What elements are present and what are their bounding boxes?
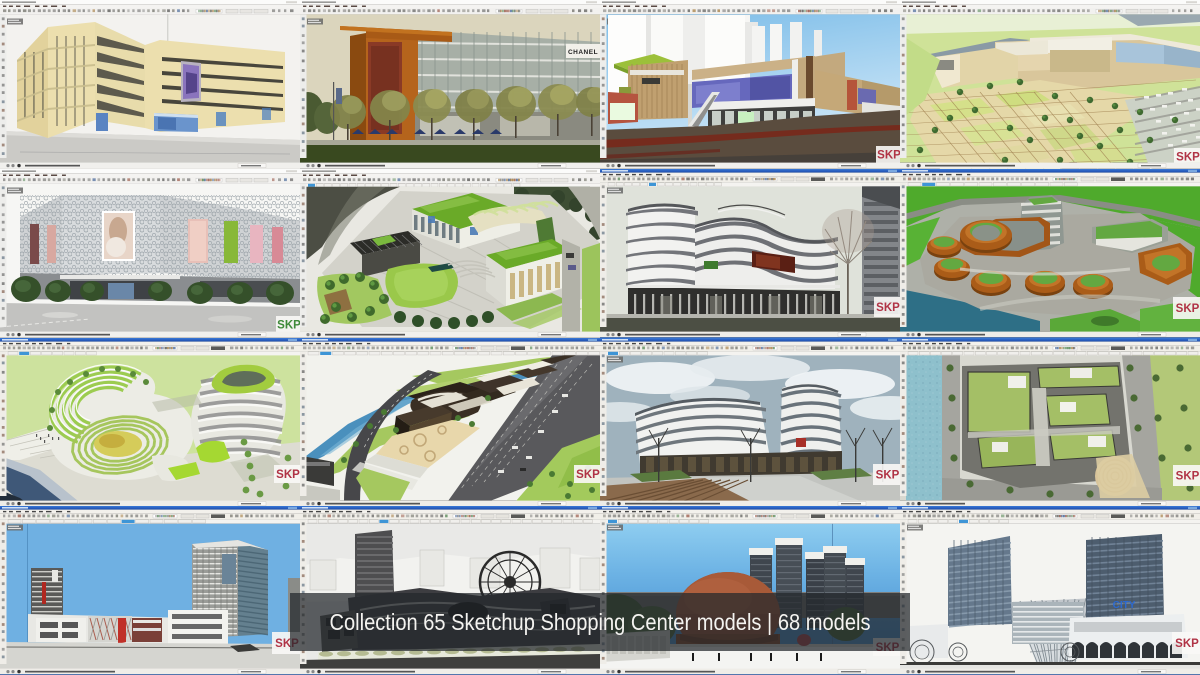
svg-text:SKP: SKP [876,469,900,481]
svg-text:CHANEL: CHANEL [568,49,598,56]
svg-text:CITY: CITY [1113,600,1136,611]
svg-text:SKP: SKP [1176,470,1200,482]
svg-text:SKP: SKP [1175,638,1199,650]
svg-text:SKP: SKP [277,319,300,331]
svg-text:SKP: SKP [877,150,900,162]
svg-text:SKP: SKP [1176,303,1200,315]
svg-text:SKP: SKP [1176,152,1200,164]
svg-text:SKP: SKP [276,469,300,481]
svg-text:SKP: SKP [876,302,900,314]
svg-text:Collection 65 Sketchup Shoppin: Collection 65 Sketchup Shopping Center m… [330,609,871,635]
svg-text:SKP: SKP [576,469,600,481]
